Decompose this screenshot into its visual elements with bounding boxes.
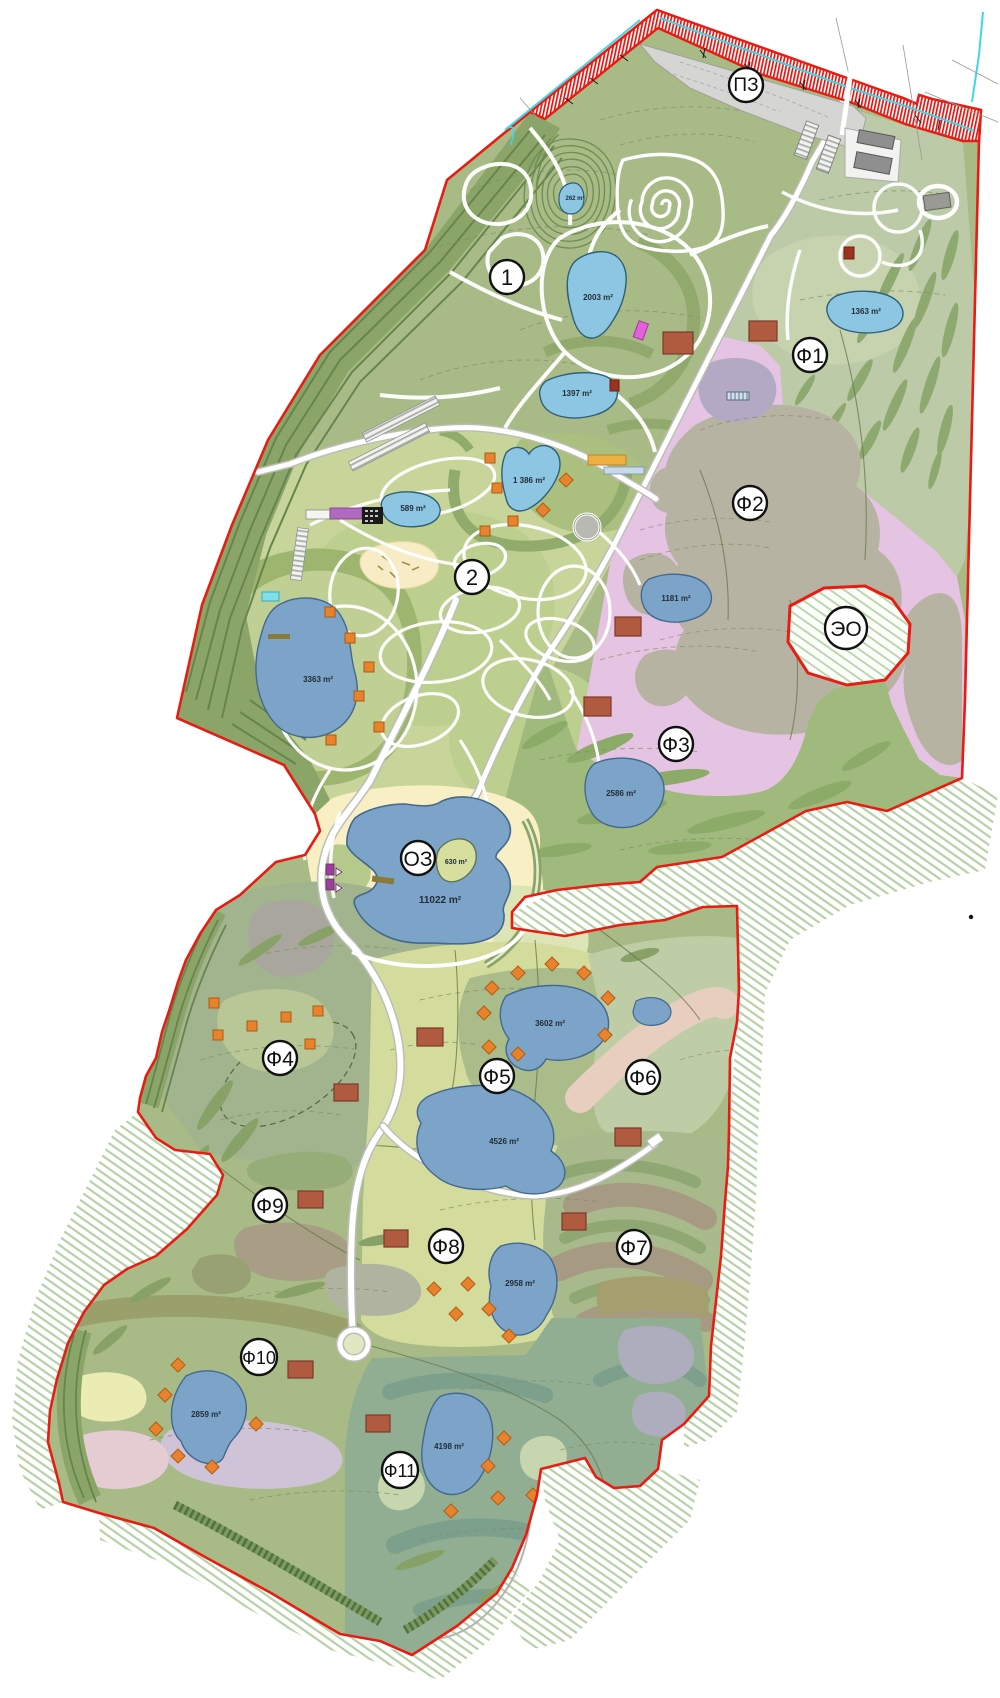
svg-text:589 m²: 589 m²: [400, 504, 426, 513]
svg-text:11022 m²: 11022 m²: [419, 895, 462, 906]
svg-text:Ф11: Ф11: [384, 1461, 416, 1481]
svg-text:2586 m²: 2586 m²: [606, 789, 636, 798]
svg-text:1181 m²: 1181 m²: [661, 594, 691, 603]
svg-text:3363 m²: 3363 m²: [303, 675, 333, 684]
svg-text:ЭО: ЭО: [830, 618, 861, 641]
svg-text:ОЗ: ОЗ: [403, 848, 432, 871]
svg-text:2003 m²: 2003 m²: [583, 293, 613, 302]
svg-text:4526 m²: 4526 m²: [489, 1137, 519, 1146]
svg-text:1363 m²: 1363 m²: [851, 307, 881, 316]
svg-text:2: 2: [466, 565, 478, 590]
svg-text:Ф7: Ф7: [620, 1237, 648, 1260]
svg-text:262 m²: 262 m²: [565, 195, 584, 202]
svg-text:Ф6: Ф6: [629, 1067, 657, 1090]
svg-text:1 386 m²: 1 386 m²: [513, 476, 545, 485]
svg-text:Ф8: Ф8: [432, 1236, 460, 1259]
svg-text:Ф5: Ф5: [483, 1066, 511, 1089]
svg-text:3602 m²: 3602 m²: [535, 1019, 565, 1028]
svg-text:1: 1: [501, 265, 513, 290]
svg-text:Ф10: Ф10: [242, 1348, 276, 1368]
svg-text:Ф1: Ф1: [796, 345, 824, 368]
svg-text:2958 m²: 2958 m²: [505, 1279, 535, 1288]
svg-text:2859 m²: 2859 m²: [191, 1410, 221, 1419]
svg-text:Ф4: Ф4: [266, 1048, 294, 1071]
svg-text:Ф9: Ф9: [256, 1195, 284, 1218]
svg-text:ПЗ: ПЗ: [733, 75, 758, 96]
svg-text:630 m²: 630 m²: [445, 859, 468, 866]
svg-text:4198 m²: 4198 m²: [434, 1442, 464, 1451]
svg-text:Ф2: Ф2: [736, 493, 764, 516]
svg-text:1397 m²: 1397 m²: [562, 389, 592, 398]
svg-text:Ф3: Ф3: [662, 734, 690, 757]
